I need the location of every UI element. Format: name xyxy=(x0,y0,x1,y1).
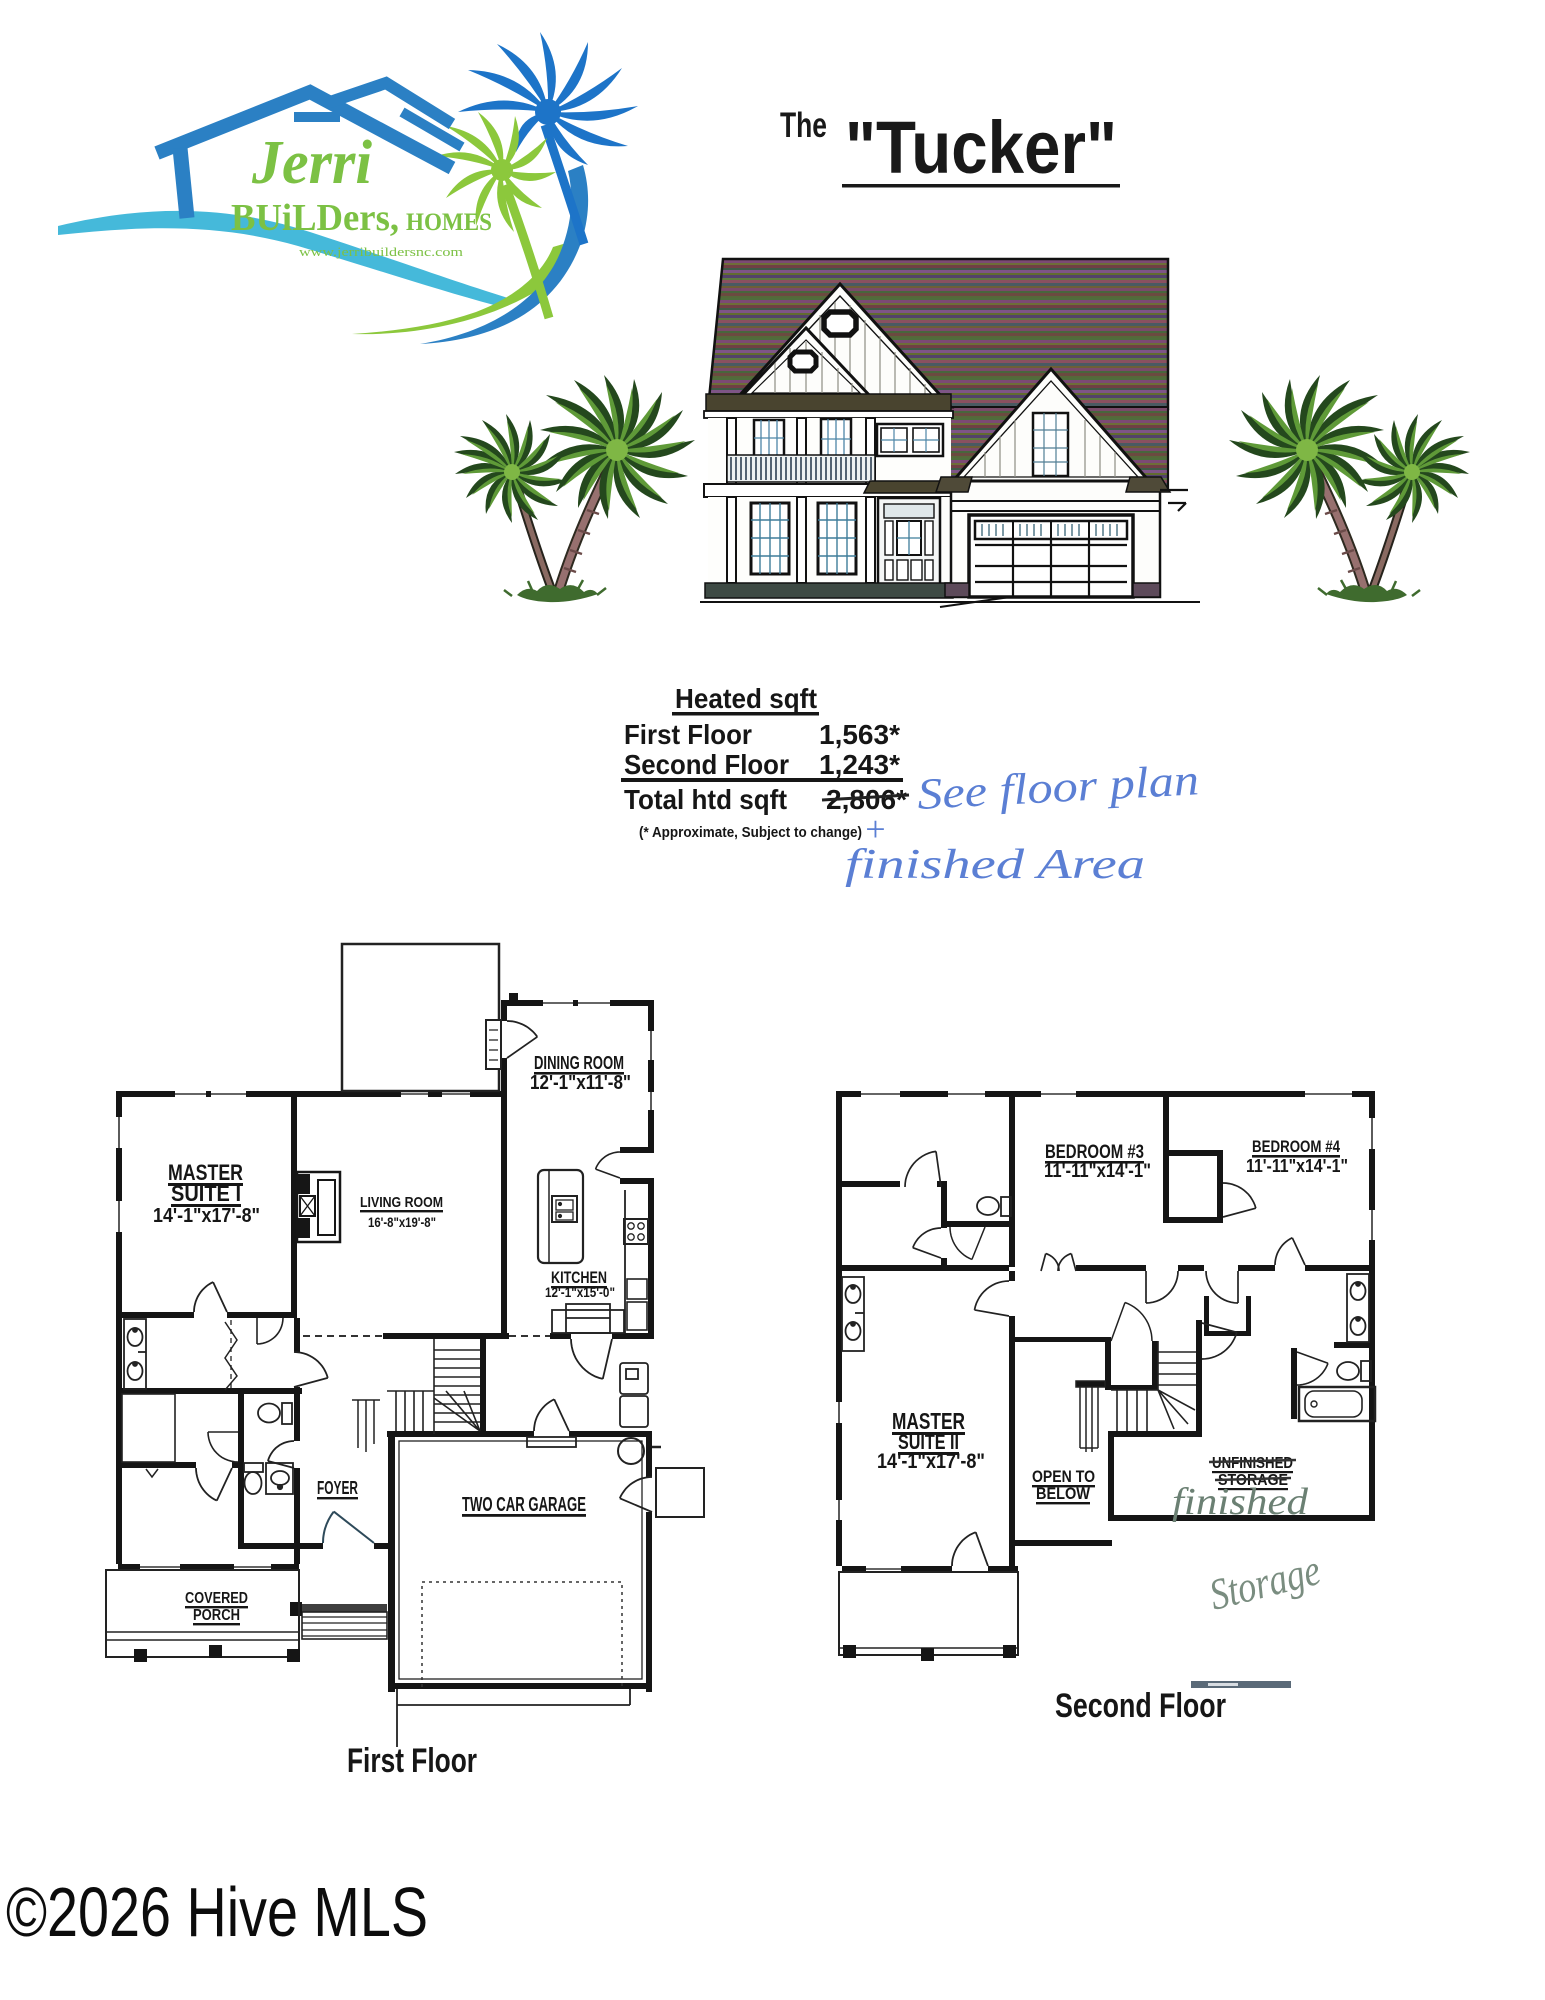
svg-text:Total htd sqft: Total htd sqft xyxy=(624,784,787,815)
svg-text:First Floor: First Floor xyxy=(347,1742,477,1780)
svg-text:See floor plan: See floor plan xyxy=(916,755,1200,819)
svg-text:Jerri: Jerri xyxy=(251,129,372,197)
svg-text:16'-8"x19'-8": 16'-8"x19'-8" xyxy=(368,1214,436,1230)
svg-text:DINING ROOM: DINING ROOM xyxy=(534,1053,624,1073)
svg-text:1,243*: 1,243* xyxy=(819,749,900,780)
svg-text:12'-1"x15'-0": 12'-1"x15'-0" xyxy=(545,1285,615,1300)
svg-text:©2026 Hive MLS: ©2026 Hive MLS xyxy=(6,1873,428,1951)
svg-text:11'-11"x14'-1": 11'-11"x14'-1" xyxy=(1044,1161,1151,1182)
svg-text:BEDROOM #3: BEDROOM #3 xyxy=(1045,1142,1144,1163)
svg-text:11'-11"x14'-1": 11'-11"x14'-1" xyxy=(1246,1156,1348,1176)
svg-text:BELOW: BELOW xyxy=(1036,1484,1091,1503)
svg-text:COVERED: COVERED xyxy=(185,1590,248,1607)
svg-text:"Tucker": "Tucker" xyxy=(845,106,1117,189)
svg-text:HOMES: HOMES xyxy=(406,209,492,236)
svg-text:The: The xyxy=(780,106,827,145)
svg-text:www.jerribuildersnc.com: www.jerribuildersnc.com xyxy=(299,245,463,259)
svg-text:1,563*: 1,563* xyxy=(819,719,900,750)
svg-text:14'-1"x17'-8": 14'-1"x17'-8" xyxy=(153,1205,260,1227)
svg-text:finished Area: finished Area xyxy=(845,842,1145,888)
svg-text:LIVING ROOM: LIVING ROOM xyxy=(360,1194,443,1211)
svg-text:Second Floor: Second Floor xyxy=(624,749,789,780)
svg-text:BEDROOM #4: BEDROOM #4 xyxy=(1252,1137,1340,1156)
svg-text:Storage: Storage xyxy=(1205,1545,1326,1620)
svg-text:PORCH: PORCH xyxy=(193,1607,240,1624)
svg-text:SUITE I: SUITE I xyxy=(171,1181,241,1206)
svg-text:FOYER: FOYER xyxy=(317,1478,358,1498)
svg-text:TWO CAR GARAGE: TWO CAR GARAGE xyxy=(462,1494,586,1516)
svg-text:First Floor: First Floor xyxy=(624,719,752,750)
svg-text:Heated sqft: Heated sqft xyxy=(675,683,817,714)
svg-text:(* Approximate, Subject to cha: (* Approximate, Subject to change) xyxy=(639,825,862,841)
svg-text:Second Floor: Second Floor xyxy=(1055,1687,1226,1725)
svg-text:UNFINISHED: UNFINISHED xyxy=(1212,1455,1293,1472)
svg-text:12'-1"x11'-8": 12'-1"x11'-8" xyxy=(530,1072,631,1094)
svg-text:14'-1"x17'-8": 14'-1"x17'-8" xyxy=(877,1450,985,1473)
svg-text:finished: finished xyxy=(1172,1481,1309,1523)
svg-text:BUiLDers,: BUiLDers, xyxy=(231,197,399,239)
